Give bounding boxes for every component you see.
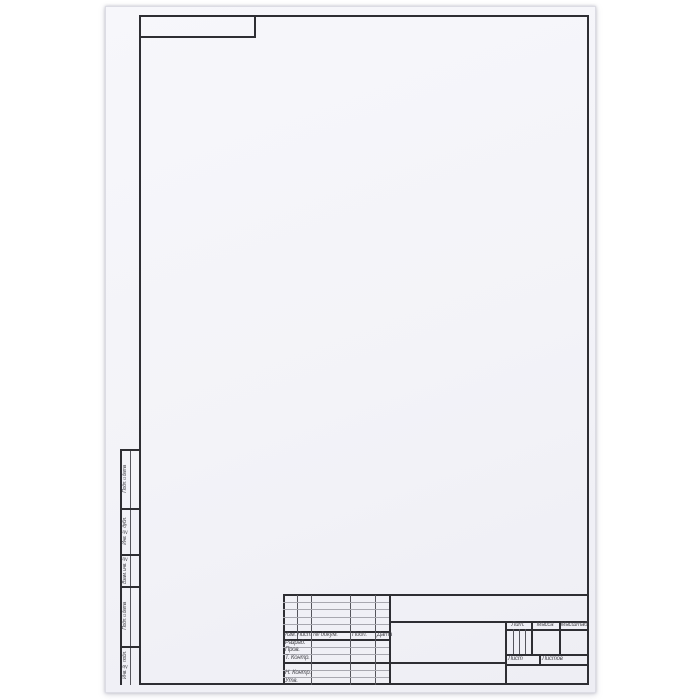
lit-header-label: Лит. (505, 621, 531, 629)
sheet-sheets-divider (539, 654, 541, 664)
revision-row-line (283, 624, 389, 625)
stamp-label: Подп. и дата (122, 602, 128, 630)
drawing-frame (139, 15, 589, 685)
revision-row-line (283, 609, 389, 610)
header-cell-podp: Подп. (352, 631, 375, 639)
sheet-label: Лист (508, 655, 539, 663)
signature-label-t-kontr: Т. Контр. (285, 654, 311, 662)
header-cell-izm: Изм. (283, 631, 297, 639)
massa-header-label: Масса (531, 621, 559, 629)
revision-row-line (283, 617, 389, 618)
signature-label-utv: Утв. (285, 677, 311, 685)
lit-subdivider (525, 629, 526, 654)
stamp-inv-n-dubl: Инв. № дубл. (120, 508, 130, 554)
masshtab-header-label: Масштаб (559, 621, 589, 629)
stamp-vzam-inv-n: Взам. инв. № (120, 554, 130, 586)
lit-subdivider (519, 629, 520, 654)
lit-header-bottom (505, 629, 589, 631)
sheets-label: Листов (542, 655, 588, 663)
top-left-doc-number-box (139, 15, 256, 38)
stamp-label: Взам. инв. № (122, 556, 128, 584)
header-cell-list: Лист (297, 631, 311, 639)
header-cell-data: Дата (377, 631, 390, 639)
stamp-podp-i-data-lower: Подп. и дата (120, 586, 130, 646)
stamp-label: Подп. и дата (122, 465, 128, 493)
drawing-sheet: Подп. и дата Инв. № дубл. Взам. инв. № П… (105, 6, 596, 693)
stamp-label: Инв. № подл. (122, 651, 128, 679)
stamp-label: Инв. № дубл. (122, 517, 128, 545)
revision-row-line (283, 602, 389, 603)
signature-label-n-kontr: Н. Контр. (285, 669, 311, 677)
name-cell-bottom (283, 662, 505, 664)
header-cell-doc-num: № докум. (313, 631, 350, 639)
stamp-inner-divider (130, 449, 131, 685)
stamp-podp-i-data-upper: Подп. и дата (120, 449, 130, 508)
stamp-inv-n-podl: Инв. № подл. (120, 646, 130, 685)
sheet-row-bottom (505, 664, 589, 666)
signature-label-prov: Пров. (285, 646, 311, 654)
lit-subdivider (513, 629, 514, 654)
title-block-top-border (283, 594, 589, 596)
